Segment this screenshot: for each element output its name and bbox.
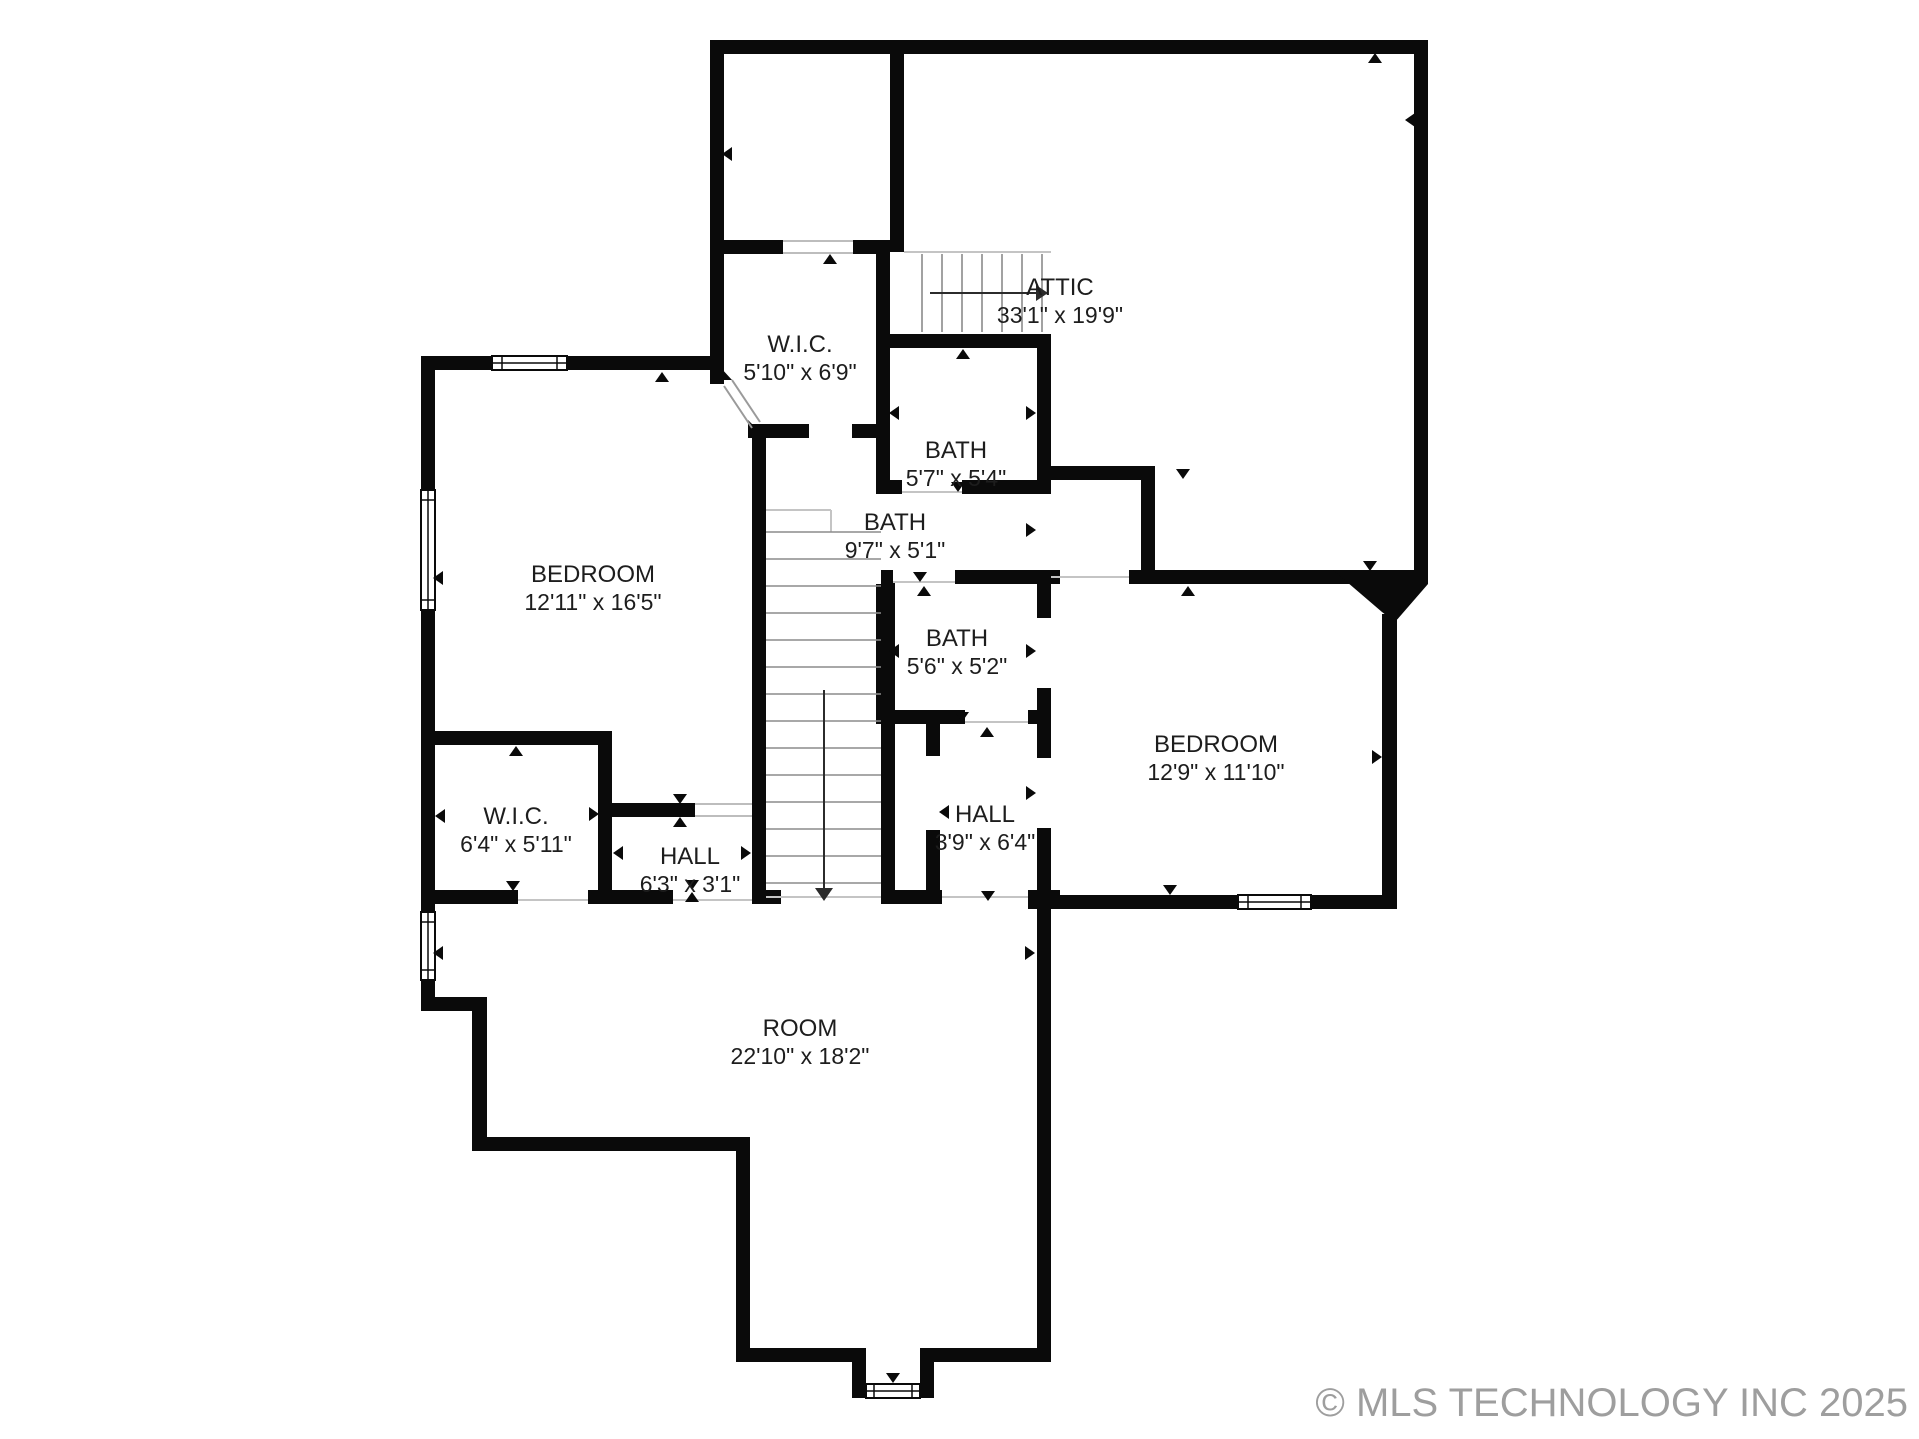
room-name: HALL bbox=[660, 843, 720, 870]
floorplan-canvas: ATTIC 33'1" x 19'9" W.I.C. 5'10" x 6'9" … bbox=[0, 0, 1919, 1439]
room-label-hall-left: HALL 6'3" x 3'1" bbox=[640, 843, 741, 897]
door-direction-marker bbox=[741, 846, 751, 860]
door-direction-marker bbox=[673, 794, 687, 804]
door-direction-marker bbox=[939, 805, 949, 819]
room-label-attic: ATTIC 33'1" x 19'9" bbox=[997, 274, 1123, 328]
door-direction-marker bbox=[673, 817, 687, 827]
door-direction-marker bbox=[1363, 561, 1377, 571]
room-dims: 3'9" x 6'4" bbox=[935, 829, 1036, 855]
room-label-hall-right: HALL 3'9" x 6'4" bbox=[935, 801, 1036, 855]
window bbox=[866, 1384, 920, 1398]
room-label-bath-mid: BATH 5'6" x 5'2" bbox=[907, 625, 1008, 679]
room-dims: 12'9" x 11'10" bbox=[1147, 759, 1284, 785]
door-direction-marker bbox=[509, 746, 523, 756]
door-direction-marker bbox=[613, 846, 623, 860]
door-direction-marker bbox=[889, 406, 899, 420]
room-label-bedroom-right: BEDROOM 12'9" x 11'10" bbox=[1147, 731, 1284, 785]
room-name: BEDROOM bbox=[1154, 731, 1278, 758]
room-dims: 5'6" x 5'2" bbox=[907, 653, 1008, 679]
room-name: W.I.C. bbox=[767, 331, 832, 358]
room-dims: 12'11" x 16'5" bbox=[524, 589, 661, 615]
door-direction-marker bbox=[506, 881, 520, 891]
door-direction-marker bbox=[435, 809, 445, 823]
door-direction-marker bbox=[913, 572, 927, 582]
room-name: BATH bbox=[864, 509, 926, 536]
room-label-wic-lower: W.I.C. 6'4" x 5'11" bbox=[460, 803, 572, 857]
window bbox=[421, 912, 435, 980]
angled-door bbox=[724, 380, 760, 428]
door-direction-marker bbox=[917, 586, 931, 596]
door-direction-marker bbox=[886, 1373, 900, 1383]
door-direction-marker bbox=[655, 372, 669, 382]
door-direction-marker bbox=[956, 349, 970, 359]
room-label-room: ROOM 22'10" x 18'2" bbox=[731, 1015, 870, 1069]
room-dims: 5'7" x 5'4" bbox=[906, 465, 1007, 491]
door-direction-marker bbox=[1026, 786, 1036, 800]
door-direction-marker bbox=[1026, 644, 1036, 658]
window bbox=[492, 356, 567, 370]
door-direction-marker bbox=[1026, 523, 1036, 537]
door-direction-marker bbox=[1372, 750, 1382, 764]
room-name: HALL bbox=[955, 801, 1015, 828]
floorplan-page: ATTIC 33'1" x 19'9" W.I.C. 5'10" x 6'9" … bbox=[0, 0, 1919, 1439]
room-name: BEDROOM bbox=[531, 561, 655, 588]
room-label-bath-hall: BATH 9'7" x 5'1" bbox=[845, 509, 946, 563]
walls-layer bbox=[421, 40, 1428, 1398]
door-direction-marker bbox=[1176, 469, 1190, 479]
room-dims: 6'4" x 5'11" bbox=[460, 831, 572, 857]
room-dims: 5'10" x 6'9" bbox=[743, 359, 856, 385]
room-name: ROOM bbox=[763, 1015, 838, 1042]
door-direction-marker bbox=[1025, 946, 1035, 960]
room-name: W.I.C. bbox=[483, 803, 548, 830]
room-name: BATH bbox=[926, 625, 988, 652]
room-label-wic-upper: W.I.C. 5'10" x 6'9" bbox=[743, 331, 856, 385]
room-label-bath-small: BATH 5'7" x 5'4" bbox=[906, 437, 1007, 491]
door-direction-marker bbox=[1181, 586, 1195, 596]
door-direction-marker bbox=[589, 807, 599, 821]
room-dims: 9'7" x 5'1" bbox=[845, 537, 946, 563]
window bbox=[1238, 895, 1311, 909]
door-direction-marker bbox=[1163, 885, 1177, 895]
room-dims: 33'1" x 19'9" bbox=[997, 302, 1123, 328]
window bbox=[421, 490, 435, 610]
room-name: BATH bbox=[925, 437, 987, 464]
door-direction-marker bbox=[1405, 113, 1415, 127]
door-direction-marker bbox=[1026, 406, 1036, 420]
room-dims: 22'10" x 18'2" bbox=[731, 1043, 870, 1069]
door-direction-marker bbox=[980, 727, 994, 737]
copyright-text: © MLS TECHNOLOGY INC 2025 bbox=[1315, 1381, 1908, 1425]
room-label-bedroom-left: BEDROOM 12'11" x 16'5" bbox=[524, 561, 661, 615]
room-dims: 6'3" x 3'1" bbox=[640, 871, 741, 897]
room-name: ATTIC bbox=[1026, 274, 1094, 301]
door-direction-marker bbox=[823, 254, 837, 264]
door-direction-marker bbox=[1368, 53, 1382, 63]
